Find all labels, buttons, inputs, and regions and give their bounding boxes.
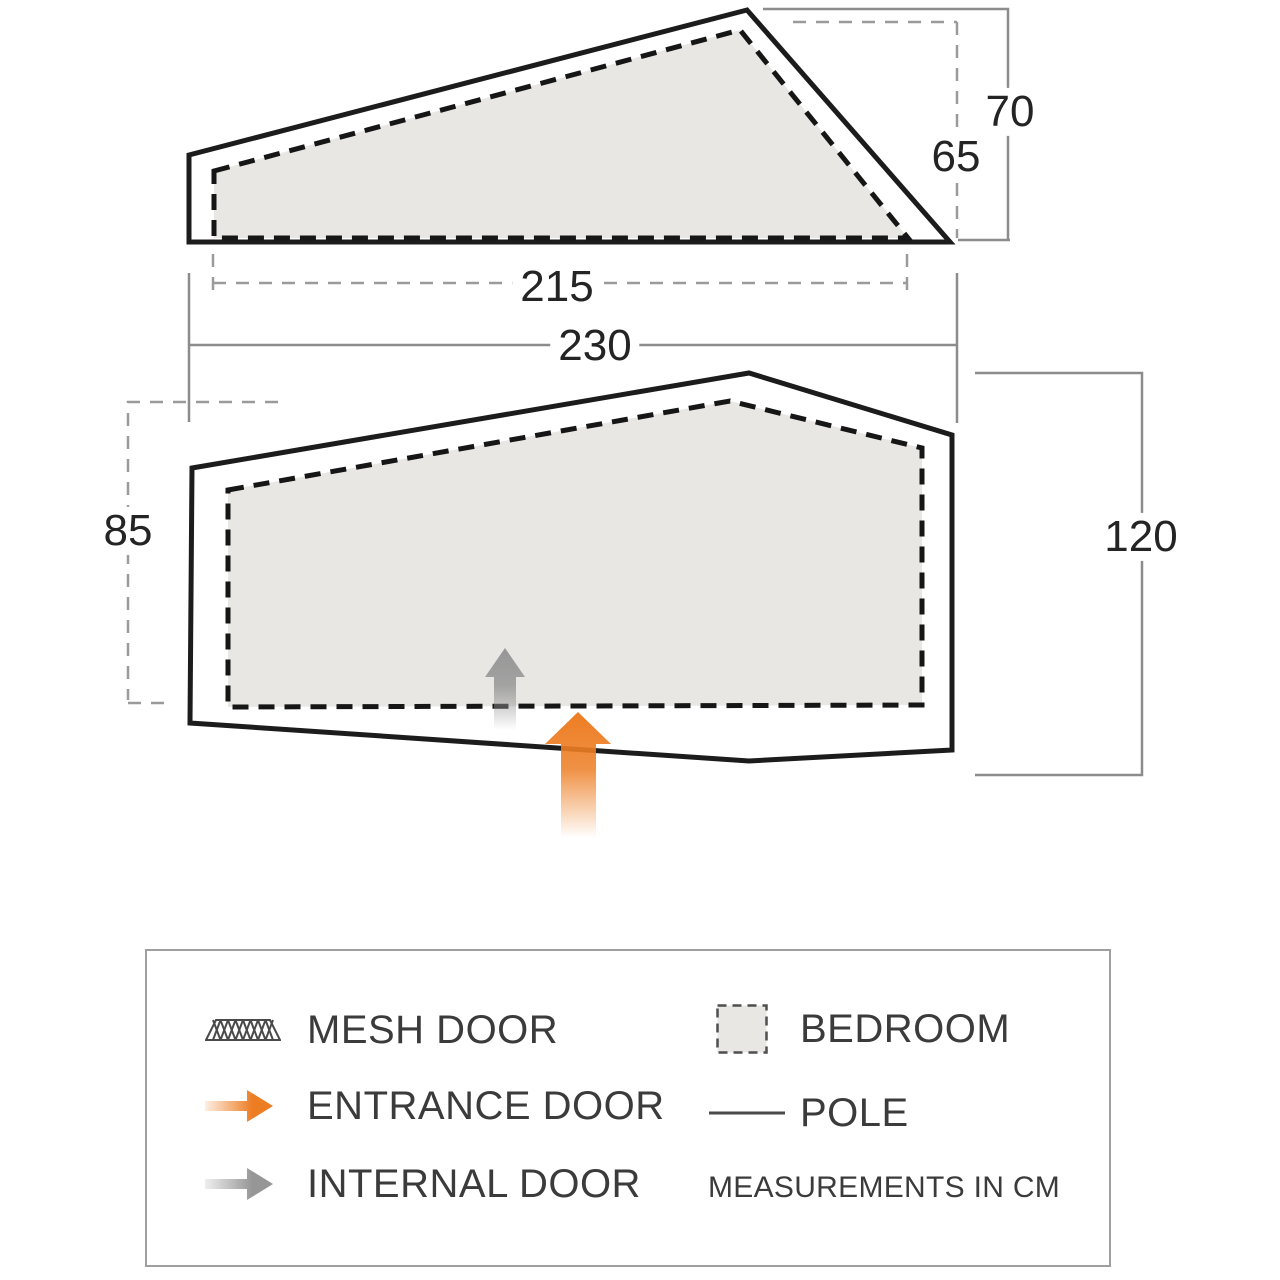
legend-row-bedroom: BEDROOM (716, 1004, 1010, 1054)
pole-line-icon (708, 1110, 800, 1116)
internal-door-arrow-icon (205, 1166, 307, 1202)
legend-label-pole: POLE (800, 1091, 909, 1136)
legend-row-mesh-door: MESH DOOR (205, 1006, 558, 1054)
dimension-label-outer-width: 230 (550, 322, 639, 370)
entrance-door-arrow-icon (205, 1088, 307, 1124)
dimension-label-plan-left: 85 (96, 507, 161, 555)
tent-dimensions-figure: 70 65 215 230 85 120 MESH DOOR ENTRANCE … (0, 0, 1280, 1280)
legend-label-mesh-door: MESH DOOR (307, 1008, 558, 1053)
legend-label-internal-door: INTERNAL DOOR (307, 1162, 641, 1207)
dimension-label-inner-height: 65 (924, 133, 989, 181)
legend-row-internal-door: INTERNAL DOOR (205, 1160, 641, 1208)
bedroom-swatch-icon (716, 1004, 800, 1054)
dimension-label-plan-right: 120 (1096, 513, 1185, 561)
legend-row-note: MEASUREMENTS IN CM (708, 1172, 1060, 1204)
dimension-120-lines (975, 373, 1142, 775)
legend-label-bedroom: BEDROOM (800, 1007, 1010, 1052)
legend-row-entrance-door: ENTRANCE DOOR (205, 1082, 665, 1130)
legend-note-measurements: MEASUREMENTS IN CM (708, 1171, 1060, 1205)
dimension-label-inner-width: 215 (512, 263, 601, 311)
mesh-door-icon (205, 1019, 307, 1041)
legend-label-entrance-door: ENTRANCE DOOR (307, 1084, 665, 1129)
dimension-label-outer-height: 70 (978, 88, 1043, 136)
legend-row-pole: POLE (708, 1089, 909, 1137)
